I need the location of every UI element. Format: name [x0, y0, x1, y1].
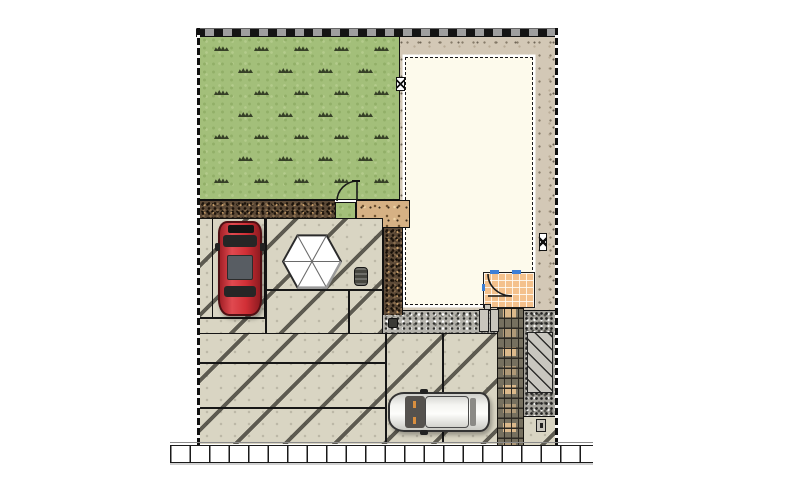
- lawn: [200, 36, 400, 200]
- grass-tuft-icon: [294, 46, 309, 51]
- water-meter-marker[interactable]: [539, 233, 547, 251]
- sidewalk-tiles: [170, 445, 593, 463]
- grass-tuft-icon: [318, 68, 333, 73]
- grass-tuft-icon: [278, 68, 293, 73]
- door-marker-left: [490, 270, 499, 274]
- grass-tuft-icon: [358, 156, 373, 161]
- dwelling-footprint[interactable]: [405, 57, 533, 305]
- rear-window: [224, 286, 256, 297]
- windshield: [223, 235, 257, 247]
- hatched-service-rect: [527, 332, 553, 393]
- approach-tile-accent: [503, 309, 516, 445]
- side-mirror-bottom: [420, 430, 428, 435]
- side-mirror-right: [260, 243, 265, 251]
- grass-tuft-icon: [374, 90, 389, 95]
- side-mirror-top: [420, 389, 428, 394]
- grass-tuft-icon: [214, 46, 229, 51]
- grass-tuft-icon: [374, 46, 389, 51]
- grass-tuft-icon: [318, 156, 333, 161]
- grass-tuft-icon: [254, 46, 269, 51]
- joint-line: [200, 407, 386, 409]
- side-mirror-left: [215, 243, 220, 251]
- boundary-line-right: [555, 28, 558, 446]
- hood-mark: [413, 401, 416, 408]
- utility-meter-pair[interactable]: [479, 309, 489, 332]
- grass-tuft-icon: [358, 112, 373, 117]
- joint-line: [200, 317, 266, 319]
- joint-line: [265, 218, 267, 333]
- grass-tuft-icon: [294, 178, 309, 183]
- site-plan: [170, 25, 593, 470]
- hexagonal-parasol[interactable]: [282, 233, 342, 290]
- water-meter-marker[interactable]: [396, 77, 405, 91]
- utility-meter-cap: [484, 304, 491, 310]
- ground-box[interactable]: [388, 318, 398, 328]
- grass-tuft-icon: [294, 90, 309, 95]
- door-marker-right: [512, 270, 521, 274]
- grass-tuft-icon: [334, 134, 349, 139]
- tiled-approach-path: [497, 308, 524, 446]
- utility-meter-pair[interactable]: [490, 309, 499, 332]
- planting-bed-dark: [200, 200, 335, 219]
- grass-tuft-icon: [278, 112, 293, 117]
- grass-tuft-icon: [334, 90, 349, 95]
- grass-tuft-icon: [294, 134, 309, 139]
- grass-tuft-icon: [254, 134, 269, 139]
- boundary-wall-top: [196, 28, 557, 37]
- grass-tuft-icon: [334, 46, 349, 51]
- joint-line: [200, 362, 386, 364]
- grass-tuft-icon: [214, 178, 229, 183]
- roof-outline: [425, 396, 469, 428]
- joint-line: [385, 333, 387, 443]
- hood-mark: [413, 417, 416, 424]
- grass-tuft-icon: [374, 134, 389, 139]
- sunroof: [227, 255, 253, 280]
- site-plan-canvas: [0, 0, 793, 502]
- grass-tuft-icon: [214, 90, 229, 95]
- grass-tuft-icon: [254, 90, 269, 95]
- red-car[interactable]: [218, 221, 262, 316]
- grass-tuft-icon: [358, 68, 373, 73]
- grass-tuft-icon: [238, 112, 253, 117]
- garden-gate-swing-icon[interactable]: [336, 180, 360, 202]
- grass-tuft-icon: [238, 68, 253, 73]
- grass-tuft-icon: [214, 134, 229, 139]
- grass-tuft-icon: [238, 156, 253, 161]
- grass-tuft-icon: [254, 178, 269, 183]
- entrance-door-swing-icon: [486, 273, 514, 299]
- public-sidewalk: [170, 442, 593, 465]
- white-car[interactable]: [388, 392, 490, 432]
- planting-strip-vertical: [383, 228, 403, 315]
- joint-line: [348, 289, 350, 333]
- grass-tuft-icon: [278, 156, 293, 161]
- grass-tuft-icon: [374, 178, 389, 183]
- grass-tuft-icon: [318, 112, 333, 117]
- door-marker-side: [482, 284, 485, 291]
- flower-pot[interactable]: [354, 267, 368, 286]
- mail-meter-box[interactable]: [536, 419, 546, 432]
- boundary-line-left: [197, 28, 200, 445]
- car-roof-bar: [228, 225, 254, 233]
- rear-window: [470, 398, 476, 426]
